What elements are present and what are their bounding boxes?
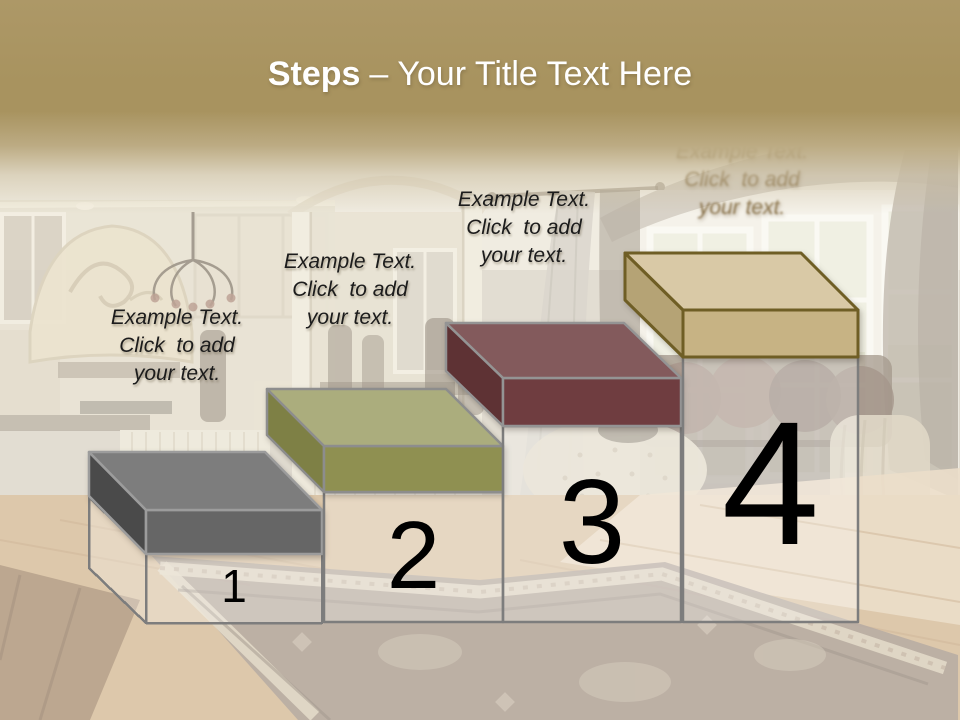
step-3-placeholder-text[interactable]: Example Text. Click to add your text. <box>429 186 619 270</box>
step-1-lid-front <box>146 510 322 554</box>
step-4-lid[interactable] <box>625 253 858 357</box>
step-2-number: 2 <box>324 508 503 604</box>
step-1-placeholder-text[interactable]: Example Text. Click to add your text. <box>82 304 272 388</box>
step-1-number: 1 <box>146 563 322 609</box>
step-3-number: 3 <box>503 462 681 582</box>
step-2-lid-front <box>324 446 503 492</box>
step-2-lid[interactable] <box>267 389 503 492</box>
slide-title-bold: Steps <box>268 55 361 93</box>
step-3-lid-front <box>503 378 681 426</box>
step-3-lid[interactable] <box>446 323 681 426</box>
slide-title-dash: – <box>369 55 388 93</box>
step-4-number: 4 <box>683 396 858 572</box>
slide-title-rest: Your Title Text Here <box>397 55 692 93</box>
step-4-lid-front <box>683 310 858 357</box>
slide: Example Text. Click to add your text. <box>0 0 960 720</box>
step-2-placeholder-text[interactable]: Example Text. Click to add your text. <box>255 248 445 332</box>
slide-title[interactable]: Steps–Your Title Text Here <box>0 52 960 96</box>
